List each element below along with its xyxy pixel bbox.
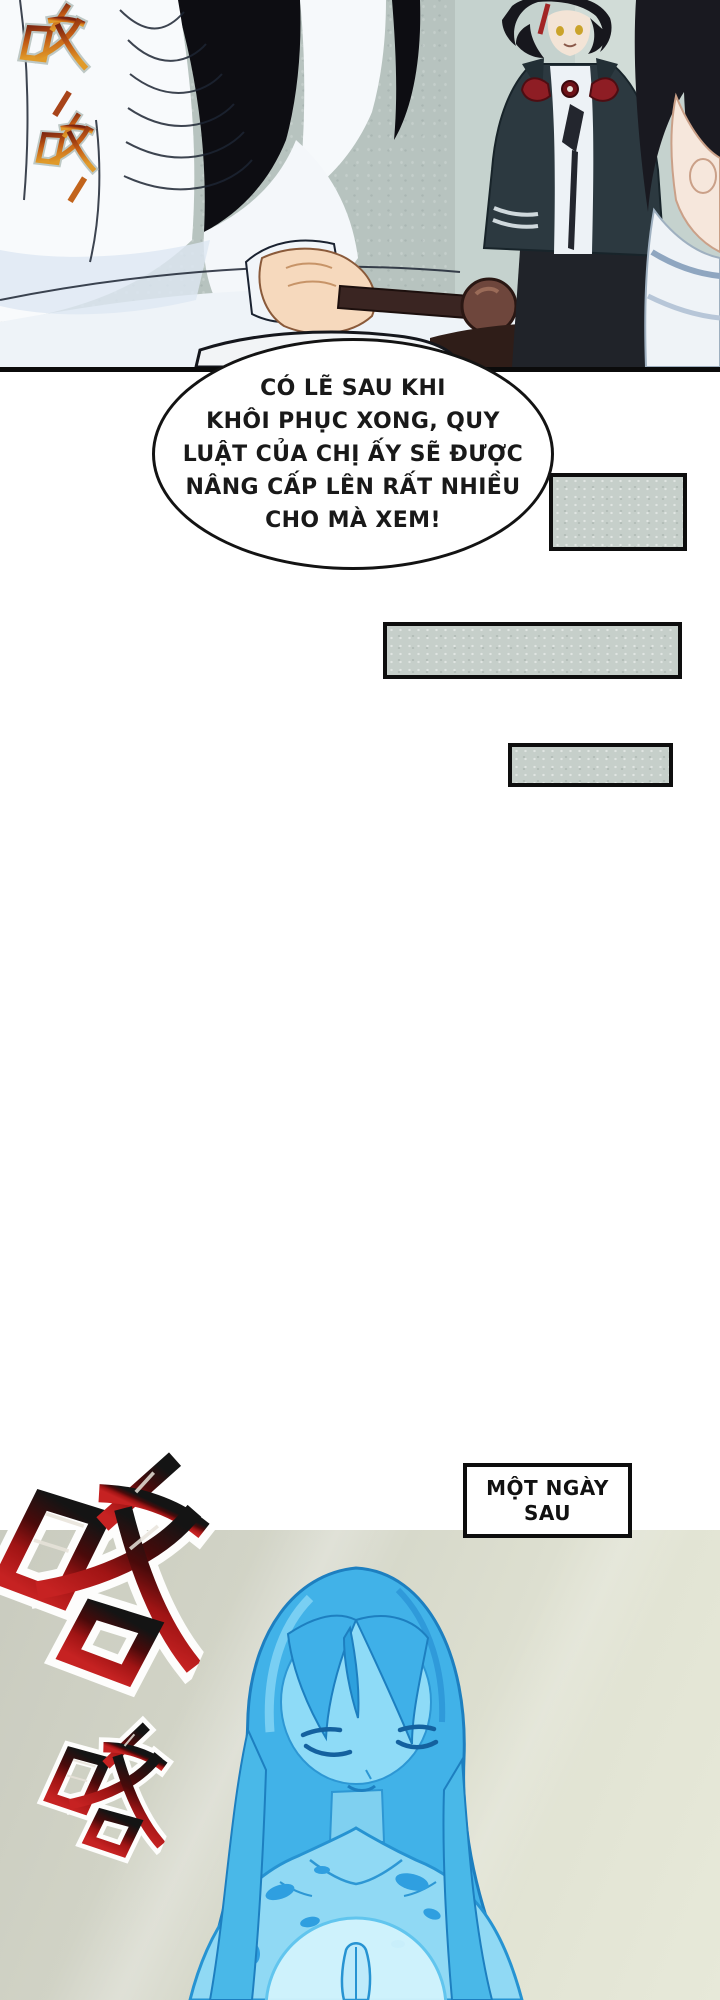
manga-page: CÓ LẼ SAU KHI KHÔI PHỤC XONG, QUY LUẬT C… xyxy=(0,0,720,2000)
speech-line: LUẬT CỦA CHỊ ẤY SẼ ĐƯỢC xyxy=(183,438,523,471)
screentone-bar-1 xyxy=(549,473,687,551)
caption-box: MỘT NGÀY SAU xyxy=(463,1463,632,1538)
speech-bubble: CÓ LẼ SAU KHI KHÔI PHỤC XONG, QUY LUẬT C… xyxy=(152,338,554,570)
woman-character xyxy=(635,0,720,367)
speech-line: CHO MÀ XEM! xyxy=(265,504,441,537)
bow-tie xyxy=(522,78,618,100)
caption-line-2: SAU xyxy=(524,1501,571,1526)
screentone-bar-2 xyxy=(383,622,682,679)
speech-line: KHÔI PHỤC XONG, QUY xyxy=(206,405,500,438)
panel-top xyxy=(0,0,720,372)
speech-line: NÂNG CẤP LÊN RẤT NHIỀU xyxy=(186,471,521,504)
screentone-bar-3 xyxy=(508,743,673,787)
caption-line-1: MỘT NGÀY xyxy=(486,1476,609,1501)
speech-line: CÓ LẼ SAU KHI xyxy=(260,372,446,405)
